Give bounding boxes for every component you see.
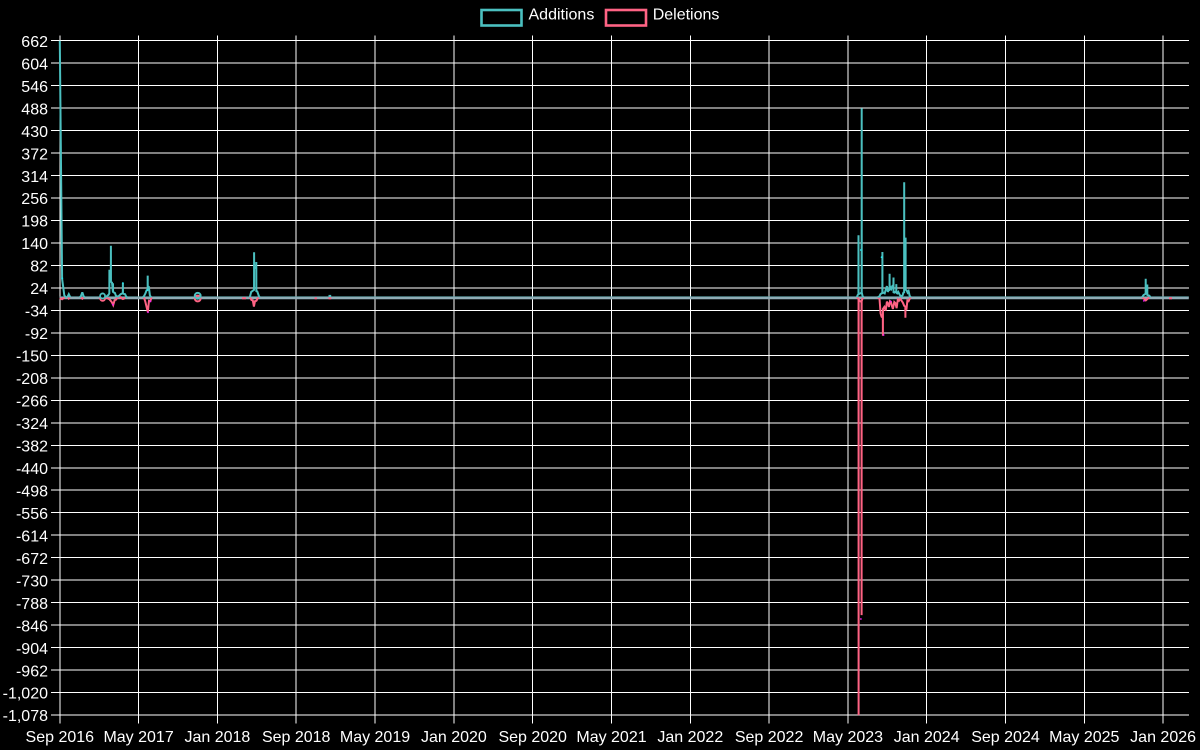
svg-text:Jan 2022: Jan 2022 <box>657 729 723 746</box>
svg-text:430: 430 <box>21 124 48 141</box>
svg-text:140: 140 <box>21 236 48 253</box>
svg-text:82: 82 <box>30 259 48 276</box>
svg-text:Deletions: Deletions <box>653 6 720 23</box>
svg-text:-846: -846 <box>16 618 48 635</box>
svg-text:-730: -730 <box>16 573 48 590</box>
svg-text:Sep 2020: Sep 2020 <box>498 729 567 746</box>
svg-text:Sep 2022: Sep 2022 <box>735 729 804 746</box>
svg-text:Jan 2018: Jan 2018 <box>184 729 250 746</box>
svg-text:546: 546 <box>21 79 48 96</box>
svg-text:-382: -382 <box>16 439 48 456</box>
svg-text:Additions: Additions <box>529 6 595 23</box>
svg-text:May 2025: May 2025 <box>1049 729 1119 746</box>
svg-text:Sep 2016: Sep 2016 <box>26 729 95 746</box>
svg-text:-962: -962 <box>16 663 48 680</box>
svg-text:Sep 2018: Sep 2018 <box>262 729 331 746</box>
svg-text:198: 198 <box>21 214 48 231</box>
svg-text:372: 372 <box>21 146 48 163</box>
svg-text:Jan 2026: Jan 2026 <box>1130 729 1196 746</box>
svg-text:-440: -440 <box>16 461 48 478</box>
svg-text:Jan 2024: Jan 2024 <box>894 729 960 746</box>
svg-text:May 2019: May 2019 <box>340 729 410 746</box>
svg-text:604: 604 <box>21 56 48 73</box>
svg-text:-904: -904 <box>16 641 48 658</box>
svg-text:256: 256 <box>21 191 48 208</box>
svg-text:-150: -150 <box>16 349 48 366</box>
svg-text:-672: -672 <box>16 551 48 568</box>
svg-text:-498: -498 <box>16 483 48 500</box>
svg-text:-266: -266 <box>16 394 48 411</box>
svg-text:-34: -34 <box>25 304 48 321</box>
svg-text:Sep 2024: Sep 2024 <box>971 729 1040 746</box>
svg-text:May 2023: May 2023 <box>813 729 883 746</box>
svg-text:May 2021: May 2021 <box>576 729 646 746</box>
svg-text:-1,078: -1,078 <box>3 708 48 725</box>
svg-text:-324: -324 <box>16 416 48 433</box>
svg-text:488: 488 <box>21 101 48 118</box>
svg-text:24: 24 <box>30 281 48 298</box>
svg-text:662: 662 <box>21 34 48 51</box>
svg-text:May 2017: May 2017 <box>103 729 173 746</box>
svg-text:314: 314 <box>21 169 48 186</box>
svg-text:-92: -92 <box>25 326 48 343</box>
svg-text:-614: -614 <box>16 528 48 545</box>
svg-text:-1,020: -1,020 <box>3 686 48 703</box>
svg-text:Jan 2020: Jan 2020 <box>421 729 487 746</box>
svg-text:-788: -788 <box>16 596 48 613</box>
svg-text:-208: -208 <box>16 371 48 388</box>
svg-text:-556: -556 <box>16 506 48 523</box>
